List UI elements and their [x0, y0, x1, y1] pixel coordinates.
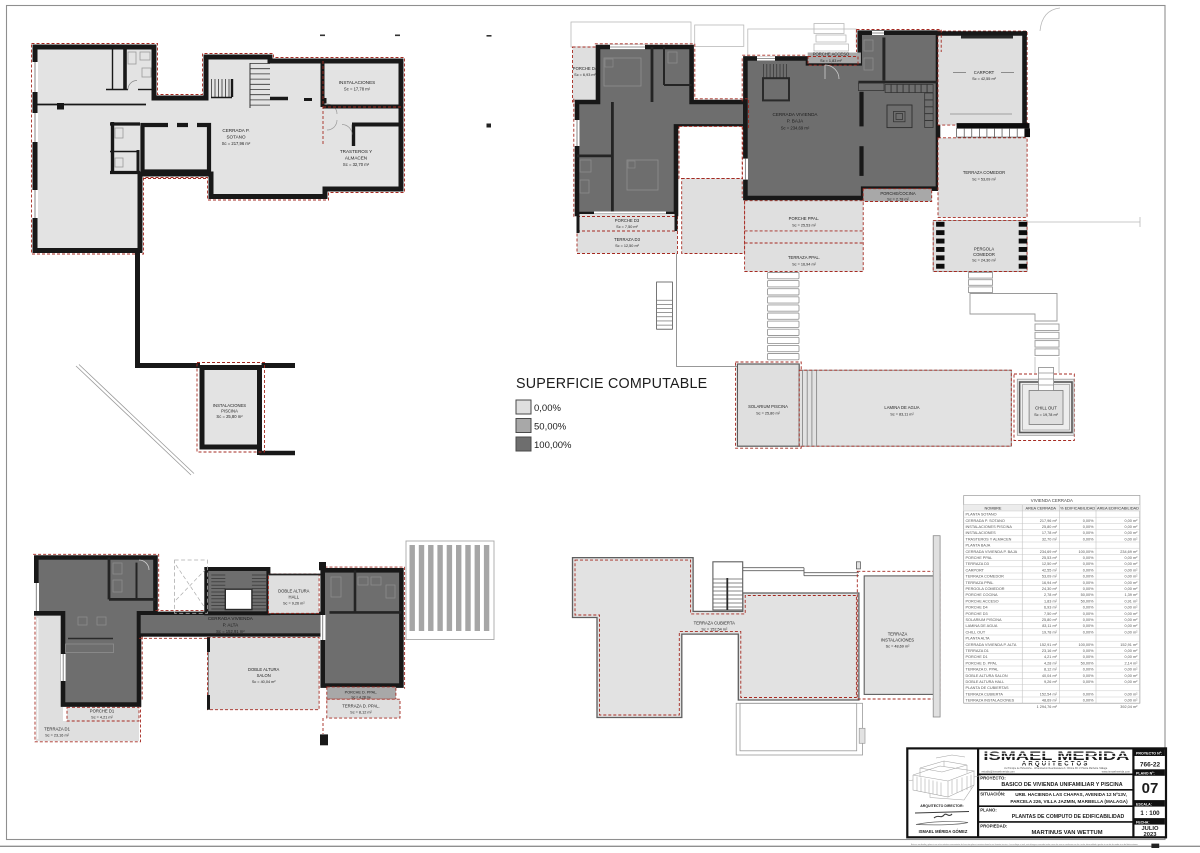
svg-text:25,80 m²: 25,80 m²	[1042, 618, 1058, 622]
svg-text:CHILL OUT: CHILL OUT	[1035, 406, 1057, 411]
svg-text:0,00%: 0,00%	[1083, 562, 1094, 566]
svg-text:25,80 m²: 25,80 m²	[1042, 525, 1058, 529]
svg-text:INSTALACIONES: INSTALACIONES	[213, 403, 246, 408]
svg-text:Sc = 234,69 m²: Sc = 234,69 m²	[781, 126, 810, 131]
svg-text:PORCHE/COCINA: PORCHE/COCINA	[880, 191, 916, 196]
svg-text:ALMACEN: ALMACEN	[345, 156, 367, 161]
svg-text:83,11 m²: 83,11 m²	[1042, 624, 1057, 628]
svg-text:0,00 m²: 0,00 m²	[1125, 556, 1139, 560]
svg-text:INSTALACIONES: INSTALACIONES	[966, 531, 997, 535]
svg-text:PORCHE PPAL.: PORCHE PPAL.	[789, 216, 820, 221]
svg-text:0,00%: 0,00%	[1083, 649, 1094, 653]
svg-text:234,69 m²: 234,69 m²	[1040, 550, 1058, 554]
svg-text:CERRADA P.: CERRADA P.	[222, 128, 249, 133]
svg-text:50,00%: 50,00%	[1081, 661, 1095, 665]
svg-text:PORCHE D. PPAL: PORCHE D. PPAL	[966, 661, 998, 665]
svg-text:PLANTA DE CUBIERTAS: PLANTA DE CUBIERTAS	[966, 686, 1010, 690]
svg-text:PORCHE COCINA: PORCHE COCINA	[966, 593, 999, 597]
svg-text:0,00 m²: 0,00 m²	[1125, 699, 1139, 703]
svg-text:SOLARIUM PISCINA: SOLARIUM PISCINA	[966, 618, 1003, 622]
svg-text:PROPIEDAD:: PROPIEDAD:	[980, 823, 1008, 828]
svg-text:100,00%: 100,00%	[1079, 643, 1095, 647]
svg-text:16,94 m²: 16,94 m²	[1042, 581, 1058, 585]
svg-text:TERRAZA COMEDOR: TERRAZA COMEDOR	[966, 575, 1005, 579]
svg-text:Sc = 24,30 m²: Sc = 24,30 m²	[972, 259, 996, 263]
svg-text:2023: 2023	[1144, 832, 1158, 838]
svg-text:SUPERFICIE COMPUTABLE: SUPERFICIE COMPUTABLE	[516, 376, 707, 392]
svg-text:Sc = 19,78 m²: Sc = 19,78 m²	[1034, 413, 1058, 417]
svg-text:50,00%: 50,00%	[1081, 593, 1095, 597]
svg-text:0,00%: 0,00%	[1083, 537, 1094, 541]
svg-text:% EDIFICABILIDAD: % EDIFICABILIDAD	[1060, 506, 1095, 511]
svg-text:P. ALTA: P. ALTA	[223, 623, 240, 628]
svg-text:ESCALA:: ESCALA:	[1136, 802, 1152, 806]
svg-text:6,93 m²: 6,93 m²	[1044, 606, 1058, 610]
svg-text:0,00%: 0,00%	[1083, 630, 1094, 634]
svg-text:PARCELA 226, VILLA JAZMIN, MAR: PARCELA 226, VILLA JAZMIN, MARBELLA (MAL…	[1010, 799, 1128, 804]
svg-text:PORCHE D1: PORCHE D1	[90, 709, 115, 714]
svg-text:Sc = 2,78 m²: Sc = 2,78 m²	[887, 198, 909, 202]
svg-text:TRASTEROS Y: TRASTEROS Y	[340, 149, 372, 154]
svg-text:0,00 m²: 0,00 m²	[1125, 587, 1139, 591]
svg-text:48,69 m²: 48,69 m²	[1042, 699, 1058, 703]
svg-text:50,00%: 50,00%	[534, 422, 567, 433]
svg-text:Sc = 53,09 m²: Sc = 53,09 m²	[972, 178, 996, 182]
svg-text:PORCHE ACCESO: PORCHE ACCESO	[813, 52, 850, 57]
svg-text:TERRAZA D3: TERRAZA D3	[614, 237, 640, 242]
svg-text:4,21 m²: 4,21 m²	[1044, 655, 1058, 659]
svg-text:0,00 m²: 0,00 m²	[1125, 575, 1139, 579]
svg-text:URB. HACIENDA LAS CHAPAS, AVEN: URB. HACIENDA LAS CHAPAS, AVENIDA 12 Nº1…	[1015, 792, 1127, 797]
svg-text:0,00%: 0,00%	[534, 403, 561, 414]
svg-text:0,00%: 0,00%	[1083, 668, 1094, 672]
svg-text:0,00%: 0,00%	[1083, 556, 1094, 560]
svg-text:Este es un diseño y plano is u: Este es un diseño y plano is un echo art…	[911, 843, 1138, 846]
svg-text:DOBLE ALTURA SALON: DOBLE ALTURA SALON	[966, 674, 1008, 678]
svg-text:TERRAZA D1: TERRAZA D1	[966, 649, 989, 653]
svg-text:INSTALACIONES: INSTALACIONES	[339, 80, 375, 85]
svg-text:1,83 m²: 1,83 m²	[1044, 599, 1058, 603]
svg-text:TERRAZA CUBIERTA: TERRAZA CUBIERTA	[966, 692, 1004, 696]
svg-text:100,00%: 100,00%	[1079, 550, 1095, 554]
svg-text:234,69 m²: 234,69 m²	[1120, 550, 1138, 554]
svg-text:217,96 m²: 217,96 m²	[1040, 519, 1058, 523]
svg-text:DOBLE ALTURA HALL: DOBLE ALTURA HALL	[966, 680, 1005, 684]
svg-text:23,16 m²: 23,16 m²	[1042, 649, 1058, 653]
svg-text:0,00 m²: 0,00 m²	[1125, 692, 1139, 696]
svg-text:PISCINA: PISCINA	[221, 409, 238, 414]
svg-text:0,00 m²: 0,00 m²	[1125, 612, 1139, 616]
svg-text:0,00%: 0,00%	[1083, 587, 1094, 591]
svg-text:PORCHE D4: PORCHE D4	[573, 66, 598, 71]
svg-text:PERGOLA: PERGOLA	[974, 247, 994, 252]
svg-text:0,00 m²: 0,00 m²	[1125, 680, 1139, 684]
svg-text:PROYECTO Nº:: PROYECTO Nº:	[1136, 752, 1162, 756]
svg-text:PLANTAS DE COMPUTO DE EDIFICAB: PLANTAS DE COMPUTO DE EDIFICABILIDAD	[1012, 814, 1125, 820]
svg-text:0,00%: 0,00%	[1083, 575, 1094, 579]
svg-text:TERRAZA D. PPAL.: TERRAZA D. PPAL.	[342, 704, 379, 709]
svg-text:ARQUITECTO DIRECTOR:: ARQUITECTO DIRECTOR:	[920, 804, 963, 808]
svg-text:CHILL OUT: CHILL OUT	[966, 630, 986, 634]
svg-text:0,00 m²: 0,00 m²	[1125, 537, 1139, 541]
svg-text:www.ismaelmerida.com: www.ismaelmerida.com	[1102, 769, 1131, 773]
svg-text:PLANTA SOTANO: PLANTA SOTANO	[966, 513, 997, 517]
svg-text:0,00 m²: 0,00 m²	[1125, 525, 1139, 529]
svg-text:0,00 m²: 0,00 m²	[1125, 630, 1139, 634]
svg-text:0,00 m²: 0,00 m²	[1125, 649, 1139, 653]
svg-text:0,00 m²: 0,00 m²	[1125, 624, 1139, 628]
svg-text:PORCHE D4: PORCHE D4	[966, 606, 988, 610]
svg-text:LAMINA DE AGUA: LAMINA DE AGUA	[884, 405, 919, 410]
svg-text:4,28 m²: 4,28 m²	[1044, 661, 1058, 665]
svg-text:PORCHE D3: PORCHE D3	[966, 612, 988, 616]
svg-text:Sc = 25,80 m²: Sc = 25,80 m²	[756, 412, 780, 416]
svg-text:392,04 m²: 392,04 m²	[1120, 705, 1138, 709]
svg-text:DOBLE ALTURA: DOBLE ALTURA	[248, 667, 280, 672]
svg-text:Sc = 9,26 m²: Sc = 9,26 m²	[283, 602, 305, 606]
svg-text:Sc = 25,53 m²: Sc = 25,53 m²	[792, 224, 816, 228]
svg-text:NOMBRE: NOMBRE	[984, 506, 1001, 511]
svg-text:0,00 m²: 0,00 m²	[1125, 562, 1139, 566]
svg-text:PLANTA ALTA: PLANTA ALTA	[966, 637, 991, 641]
svg-text:TERRAZA PPAL.: TERRAZA PPAL.	[788, 255, 820, 260]
svg-text:PORCHE D. PPAL.: PORCHE D. PPAL.	[345, 691, 378, 695]
svg-text:19,78 m²: 19,78 m²	[1042, 630, 1058, 634]
svg-text:Sc = 25,80 m²: Sc = 25,80 m²	[216, 414, 243, 419]
svg-text:Sc = 32,70 m²: Sc = 32,70 m²	[343, 162, 370, 167]
svg-text:CERRADA VIVIENDA: CERRADA VIVIENDA	[773, 112, 819, 117]
svg-text:Sc = 6,93 m²: Sc = 6,93 m²	[574, 73, 596, 77]
svg-text:Sc = 48,69 m²: Sc = 48,69 m²	[886, 645, 910, 649]
svg-text:8,12 m²: 8,12 m²	[1044, 668, 1058, 672]
svg-text:P. BAJA: P. BAJA	[787, 119, 804, 124]
svg-text:PORCHE D3: PORCHE D3	[615, 218, 640, 223]
svg-text:TRASTEROS Y ALMACEN: TRASTEROS Y ALMACEN	[966, 537, 1012, 541]
svg-text:ISMAEL MÉRIDA GÓMEZ: ISMAEL MÉRIDA GÓMEZ	[919, 829, 968, 834]
svg-text:DOBLE ALTURA: DOBLE ALTURA	[278, 589, 310, 594]
svg-text:0,00%: 0,00%	[1083, 531, 1094, 535]
svg-text:Sc = 1,83 m²: Sc = 1,83 m²	[820, 59, 842, 63]
svg-text:0,00%: 0,00%	[1083, 581, 1094, 585]
svg-text:24,30 m²: 24,30 m²	[1042, 587, 1058, 591]
svg-text:17,78 m²: 17,78 m²	[1042, 531, 1058, 535]
svg-text:7,50 m²: 7,50 m²	[1044, 612, 1058, 616]
svg-text:INSTALACIONES: INSTALACIONES	[881, 638, 914, 643]
svg-text:0,00 m²: 0,00 m²	[1125, 581, 1139, 585]
svg-text:CERRADA VIVIENDA P. BAJA: CERRADA VIVIENDA P. BAJA	[966, 550, 1018, 554]
svg-text:LAMINA DE AGUA: LAMINA DE AGUA	[966, 624, 998, 628]
svg-text:PORCHE D1: PORCHE D1	[966, 655, 988, 659]
svg-text:0,00 m²: 0,00 m²	[1125, 655, 1139, 659]
svg-text:25,53 m²: 25,53 m²	[1042, 556, 1058, 560]
svg-text:PORCHE ACCESO: PORCHE ACCESO	[966, 599, 999, 603]
svg-text:PLANTA BAJA: PLANTA BAJA	[966, 544, 991, 548]
svg-text:2,14 m²: 2,14 m²	[1125, 661, 1139, 665]
svg-text:0,00%: 0,00%	[1083, 699, 1094, 703]
svg-text:0,00 m²: 0,00 m²	[1125, 668, 1139, 672]
svg-text:0,00%: 0,00%	[1083, 618, 1094, 622]
svg-text:0,91 m²: 0,91 m²	[1125, 599, 1139, 603]
svg-text:42,55 m²: 42,55 m²	[1042, 568, 1058, 572]
svg-text:PROYECTO:: PROYECTO:	[980, 775, 1006, 780]
svg-text:CARPORT: CARPORT	[974, 70, 995, 75]
svg-text:TERRAZA D. PPAL: TERRAZA D. PPAL	[966, 668, 999, 672]
svg-text:152,91 m²: 152,91 m²	[1040, 643, 1058, 647]
svg-text:Sc = 8,12 m²: Sc = 8,12 m²	[350, 711, 372, 715]
svg-text:Sc = 16,94 m²: Sc = 16,94 m²	[792, 263, 816, 267]
svg-text:Sc = 152,54 m²: Sc = 152,54 m²	[701, 628, 728, 632]
svg-text:PERGOLA COMEDOR: PERGOLA COMEDOR	[966, 587, 1005, 591]
svg-text:53,09 m²: 53,09 m²	[1042, 575, 1058, 579]
svg-text:0,00%: 0,00%	[1083, 655, 1094, 659]
svg-text:SALON: SALON	[257, 673, 271, 678]
svg-text:152,54 m²: 152,54 m²	[1040, 692, 1058, 696]
svg-text:FECHA:: FECHA:	[1136, 820, 1150, 824]
svg-text:100,00%: 100,00%	[534, 440, 572, 451]
svg-text:Sc = 23,16 m²: Sc = 23,16 m²	[45, 734, 69, 738]
svg-text:0,00%: 0,00%	[1083, 680, 1094, 684]
svg-text:0,00 m²: 0,00 m²	[1125, 674, 1139, 678]
svg-text:VIVIENDA CERRADA: VIVIENDA CERRADA	[1031, 498, 1073, 503]
svg-text:Av Principe de Hohenlohe - Urb: Av Principe de Hohenlohe - Urbanización …	[1004, 766, 1108, 770]
svg-text:0,00 m²: 0,00 m²	[1125, 606, 1139, 610]
svg-text:TERRAZA INSTALACIONES: TERRAZA INSTALACIONES	[966, 699, 1015, 703]
svg-text:0,00%: 0,00%	[1083, 674, 1094, 678]
svg-text:PLANO:: PLANO:	[980, 807, 997, 812]
svg-text:1,39 m²: 1,39 m²	[1125, 593, 1139, 597]
svg-text:TERRAZA: TERRAZA	[888, 632, 908, 637]
svg-text:TERRAZA D1: TERRAZA D1	[44, 727, 70, 732]
svg-text:CERRADA P. SOTANO: CERRADA P. SOTANO	[966, 519, 1005, 523]
svg-text:07: 07	[1142, 780, 1159, 797]
svg-text:0,00%: 0,00%	[1083, 612, 1094, 616]
svg-text:1 : 100: 1 : 100	[1140, 810, 1160, 817]
svg-text:0,00%: 0,00%	[1083, 692, 1094, 696]
svg-text:9,26 m²: 9,26 m²	[1044, 680, 1058, 684]
svg-text:Sc = 7,50 m²: Sc = 7,50 m²	[616, 225, 638, 229]
svg-text:32,70 m²: 32,70 m²	[1042, 537, 1058, 541]
svg-text:Sc = 152,91 m²: Sc = 152,91 m²	[216, 629, 245, 634]
svg-text:SITUACIÓN:: SITUACIÓN:	[980, 792, 1006, 797]
svg-text:Sc = 83,11 m²: Sc = 83,11 m²	[890, 413, 914, 417]
svg-text:AREA CERRADA: AREA CERRADA	[1026, 506, 1057, 511]
svg-text:766-22: 766-22	[1140, 762, 1161, 769]
svg-text:PORCHE PPAL: PORCHE PPAL	[966, 556, 993, 560]
svg-text:Sc = 4,21 m²: Sc = 4,21 m²	[91, 716, 113, 720]
svg-text:TERRAZA PPAL: TERRAZA PPAL	[966, 581, 994, 585]
svg-text:SOTANO: SOTANO	[226, 135, 245, 140]
svg-text:0,00%: 0,00%	[1083, 568, 1094, 572]
svg-text:Sc = 42,55 m²: Sc = 42,55 m²	[972, 77, 996, 81]
svg-text:0,00%: 0,00%	[1083, 519, 1094, 523]
svg-text:CERRADA VIVIENDA P. ALTA: CERRADA VIVIENDA P. ALTA	[966, 643, 1017, 647]
svg-text:CARPORT: CARPORT	[966, 568, 985, 572]
svg-text:AREA EDIFICABILIDAD: AREA EDIFICABILIDAD	[1097, 506, 1139, 511]
svg-text:0,00%: 0,00%	[1083, 606, 1094, 610]
svg-text:40,04 m²: 40,04 m²	[1042, 674, 1058, 678]
svg-text:MARTINUS VAN WETTUM: MARTINUS VAN WETTUM	[1031, 830, 1102, 836]
svg-text:SOLARIUM PISCINA: SOLARIUM PISCINA	[748, 404, 788, 409]
svg-text:0,00 m²: 0,00 m²	[1125, 519, 1139, 523]
svg-text:estudio@ismaelmerida.com: estudio@ismaelmerida.com	[982, 769, 1016, 773]
svg-text:Sc = 217,96 m²: Sc = 217,96 m²	[222, 141, 251, 146]
svg-text:TERRAZA D3: TERRAZA D3	[966, 562, 989, 566]
svg-text:HALL: HALL	[289, 595, 300, 600]
svg-text:Sc = 17,78 m²: Sc = 17,78 m²	[344, 87, 371, 92]
svg-text:0,00%: 0,00%	[1083, 624, 1094, 628]
svg-text:50,00%: 50,00%	[1081, 599, 1095, 603]
svg-text:CERRADA VIVIENDA: CERRADA VIVIENDA	[208, 616, 254, 621]
svg-text:0,00 m²: 0,00 m²	[1125, 618, 1139, 622]
svg-text:Sc = 12,50 m²: Sc = 12,50 m²	[615, 244, 639, 248]
svg-text:TERRAZA COMEDOR: TERRAZA COMEDOR	[963, 170, 1005, 175]
svg-text:INSTALACIONES PISCINA: INSTALACIONES PISCINA	[966, 525, 1013, 529]
svg-text:TERRAZA CUBIERTA: TERRAZA CUBIERTA	[694, 621, 735, 626]
svg-text:152,91 m²: 152,91 m²	[1120, 643, 1138, 647]
svg-text:Sc = 40,04 m²: Sc = 40,04 m²	[252, 680, 276, 684]
svg-text:0,00 m²: 0,00 m²	[1125, 531, 1139, 535]
svg-text:2,78 m²: 2,78 m²	[1044, 593, 1058, 597]
svg-text:0,00 m²: 0,00 m²	[1125, 568, 1139, 572]
svg-text:BASICO DE VIVIENDA UNIFAMILIAR: BASICO DE VIVIENDA UNIFAMILIAR Y PISCINA	[1001, 782, 1122, 788]
svg-text:1 294,76 m²: 1 294,76 m²	[1037, 705, 1058, 709]
svg-text:PLANO Nº:: PLANO Nº:	[1136, 772, 1155, 776]
svg-text:COMEDOR: COMEDOR	[973, 252, 995, 257]
svg-text:0,00%: 0,00%	[1083, 525, 1094, 529]
svg-text:12,50 m²: 12,50 m²	[1042, 562, 1058, 566]
